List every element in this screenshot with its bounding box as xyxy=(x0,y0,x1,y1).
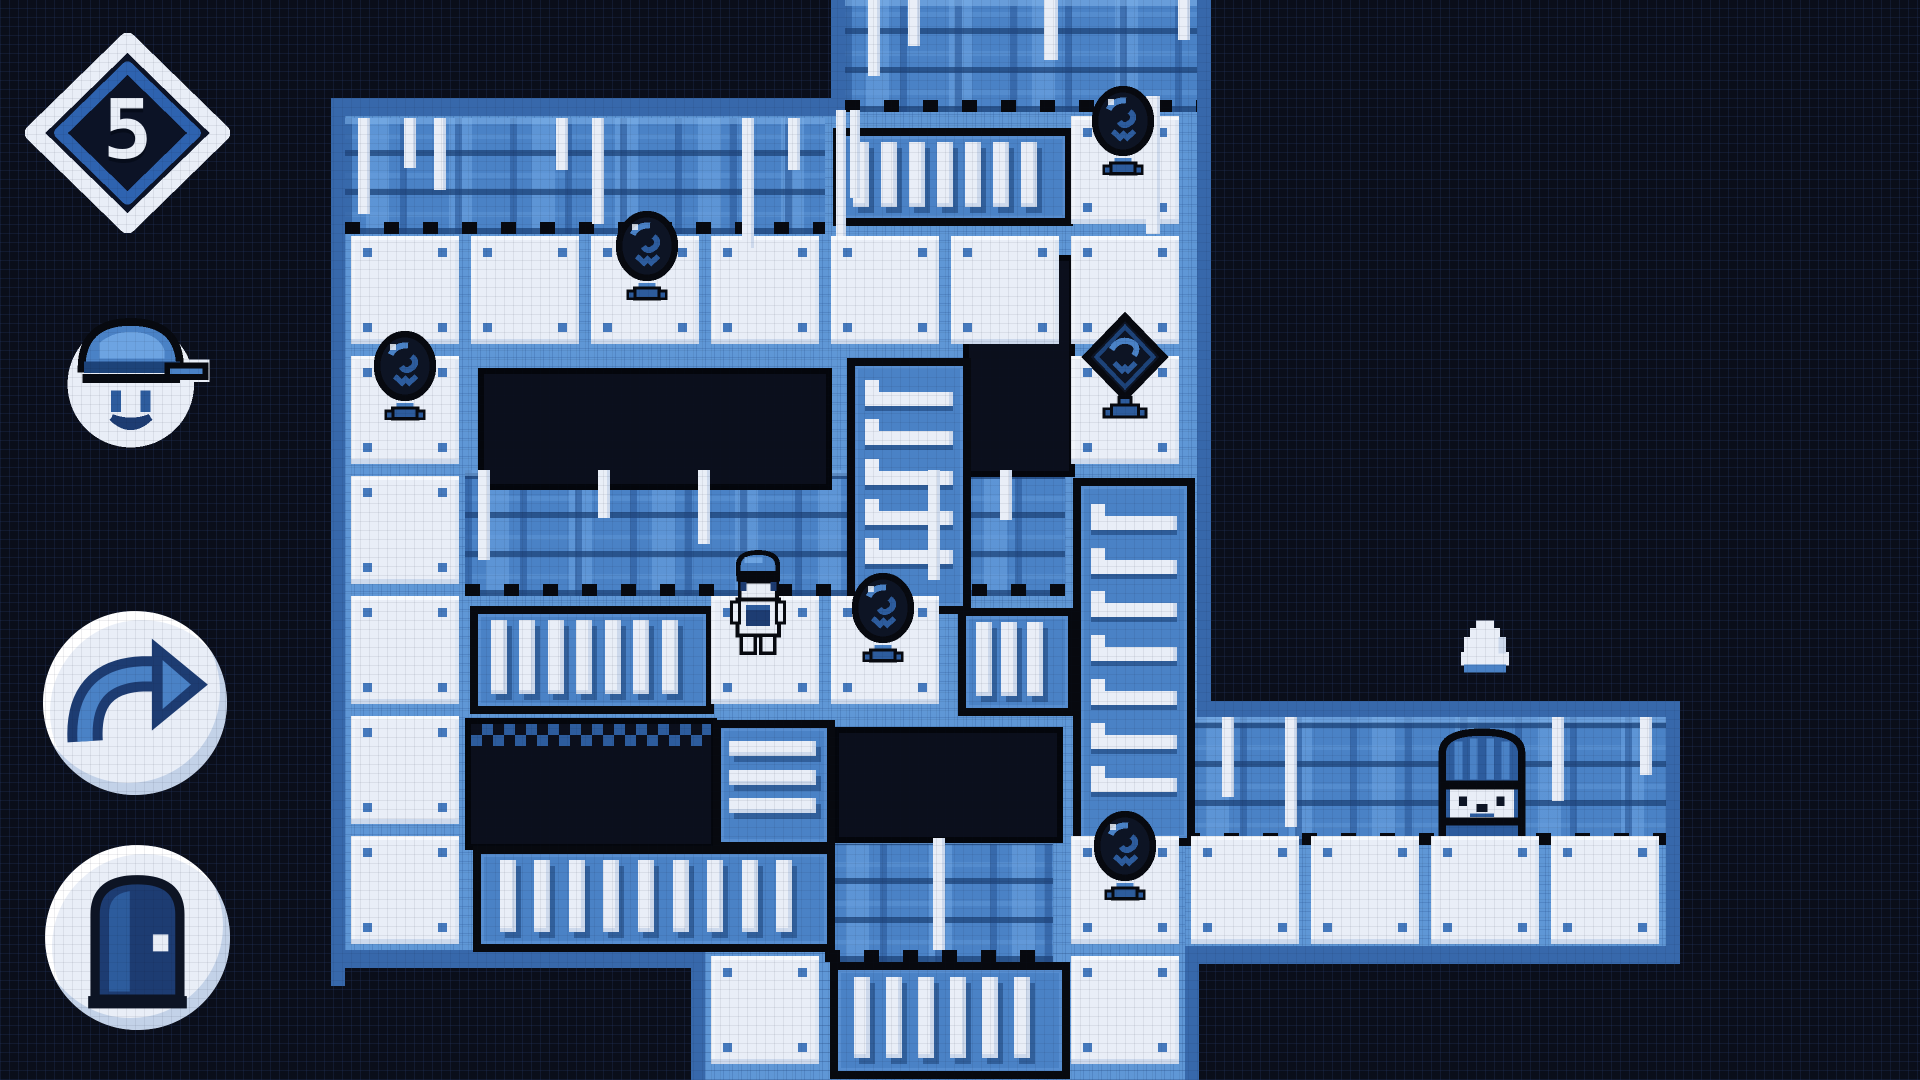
ladder-rung xyxy=(1091,560,1177,574)
grate-bar xyxy=(548,620,564,694)
game-viewport: 5 xyxy=(0,0,1920,1080)
wall-drip xyxy=(404,118,416,168)
map-border xyxy=(331,950,705,968)
map-border xyxy=(1185,946,1680,964)
map-border xyxy=(1185,964,1199,1080)
level-number: 5 xyxy=(25,33,230,233)
player-character[interactable] xyxy=(723,548,793,668)
wall-drip xyxy=(742,118,754,248)
map-border xyxy=(1197,701,1666,717)
brick-wall xyxy=(1185,717,1666,845)
floor-tile xyxy=(831,236,939,344)
wall-drip xyxy=(1552,717,1564,801)
capped-character-face-icon xyxy=(58,296,214,462)
ladder xyxy=(1073,478,1195,846)
wall-drip xyxy=(698,470,710,544)
grate-bar xyxy=(1027,622,1043,696)
floor-tile xyxy=(351,836,459,944)
wall-base-dashes xyxy=(825,950,1053,962)
exit-button[interactable] xyxy=(45,845,230,1030)
floor-tile xyxy=(1311,836,1419,944)
grate-bar xyxy=(965,142,981,208)
ghost-blob[interactable] xyxy=(1452,616,1518,676)
wall-drip xyxy=(933,838,945,950)
grate-bar xyxy=(776,860,792,932)
grate-bar xyxy=(707,860,723,932)
level-badge: 5 xyxy=(25,33,230,233)
wall-drip xyxy=(1044,0,1058,60)
map-border xyxy=(1666,701,1680,964)
grate-bar xyxy=(937,142,953,208)
grate xyxy=(958,608,1076,716)
grate-bar xyxy=(605,620,621,694)
wall-drip xyxy=(850,110,860,198)
map-border xyxy=(331,98,345,986)
exit-door[interactable] xyxy=(1430,723,1534,839)
grate-bar xyxy=(1001,622,1017,696)
grate-bar xyxy=(976,622,992,696)
grate xyxy=(470,606,714,714)
bomb-sprite[interactable] xyxy=(614,210,680,306)
ladder-rung xyxy=(1091,735,1177,749)
floor-tile xyxy=(1191,836,1299,944)
grate-bar xyxy=(729,770,816,785)
grate xyxy=(473,846,835,952)
wall-drip xyxy=(928,470,940,580)
wall-drip xyxy=(556,118,568,170)
grate-bar xyxy=(993,142,1009,208)
wall-drip xyxy=(358,118,370,214)
grate-bar xyxy=(603,860,619,932)
grate xyxy=(830,962,1070,1079)
bomb-sprite[interactable] xyxy=(1092,810,1158,906)
wall-drip xyxy=(478,470,490,560)
grate-bar xyxy=(519,620,535,694)
grate-bar xyxy=(569,860,585,932)
floor-tile xyxy=(351,476,459,584)
wall-drip xyxy=(1222,717,1234,797)
wall-drip xyxy=(868,0,880,76)
floor-tile xyxy=(351,716,459,824)
grate-bar xyxy=(534,860,550,932)
bomb-sprite[interactable] xyxy=(850,572,916,668)
grate-bar xyxy=(742,860,758,932)
wall-drip xyxy=(598,470,610,518)
grate-bar xyxy=(576,620,592,694)
map-border xyxy=(831,0,845,100)
wall-drip xyxy=(592,118,604,224)
grate xyxy=(713,720,835,850)
pit-hole xyxy=(465,718,717,850)
grate-bar xyxy=(500,860,516,932)
grate-bar xyxy=(909,142,925,208)
grate-bar xyxy=(491,620,507,694)
grate-bar xyxy=(918,977,934,1058)
wall-drip xyxy=(1285,717,1297,827)
grate-bar xyxy=(638,860,654,932)
grate-bar xyxy=(633,620,649,694)
ladder-rung xyxy=(865,431,953,445)
floor-tile xyxy=(1551,836,1659,944)
bomb-sprite[interactable] xyxy=(1090,85,1156,181)
grate-bar xyxy=(729,798,816,813)
ladder-rung xyxy=(1091,691,1177,705)
grate-bar xyxy=(881,142,897,208)
wall-drip xyxy=(434,118,446,190)
grate-bar xyxy=(950,977,966,1058)
ladder-rung xyxy=(1091,603,1177,617)
redo-arrow-icon xyxy=(43,611,227,795)
pit-hole xyxy=(833,727,1063,843)
grate-bar xyxy=(854,977,870,1058)
grate-bar xyxy=(982,977,998,1058)
wall-drip xyxy=(1640,717,1652,775)
ladder-rung xyxy=(1091,647,1177,661)
floor-tile xyxy=(351,236,459,344)
wall-drip xyxy=(788,118,800,170)
diamond-bomb-sprite[interactable] xyxy=(1080,312,1170,432)
grate-bar xyxy=(729,741,816,756)
floor-tile xyxy=(1431,836,1539,944)
grate-bar xyxy=(886,977,902,1058)
floor-tile xyxy=(711,956,819,1064)
door-icon xyxy=(45,845,230,1030)
wall-drip xyxy=(908,0,920,46)
grate-bar xyxy=(1021,142,1037,208)
bomb-sprite[interactable] xyxy=(372,330,438,426)
player-portrait xyxy=(58,296,214,462)
floor-tile xyxy=(711,236,819,344)
ladder-rung xyxy=(1091,778,1177,792)
undo-button[interactable] xyxy=(43,611,227,795)
wall-drip xyxy=(836,110,846,236)
map-border xyxy=(1197,0,1211,715)
wall-drip xyxy=(1178,0,1190,40)
ladder-rung xyxy=(865,392,953,406)
floor-tile xyxy=(951,236,1059,344)
floor-tile xyxy=(351,596,459,704)
grate-bar xyxy=(662,620,678,694)
pit-hole xyxy=(478,368,832,490)
grate xyxy=(833,128,1073,226)
grate-bar xyxy=(673,860,689,932)
map-border xyxy=(331,98,845,116)
pit-checker-edge xyxy=(471,724,711,746)
wall-drip xyxy=(1000,470,1012,520)
floor-tile xyxy=(471,236,579,344)
map-layer xyxy=(0,0,1920,1080)
ladder-rung xyxy=(1091,516,1177,530)
floor-tile xyxy=(1071,956,1179,1064)
grate-bar xyxy=(1014,977,1030,1058)
map-border xyxy=(691,950,705,1080)
